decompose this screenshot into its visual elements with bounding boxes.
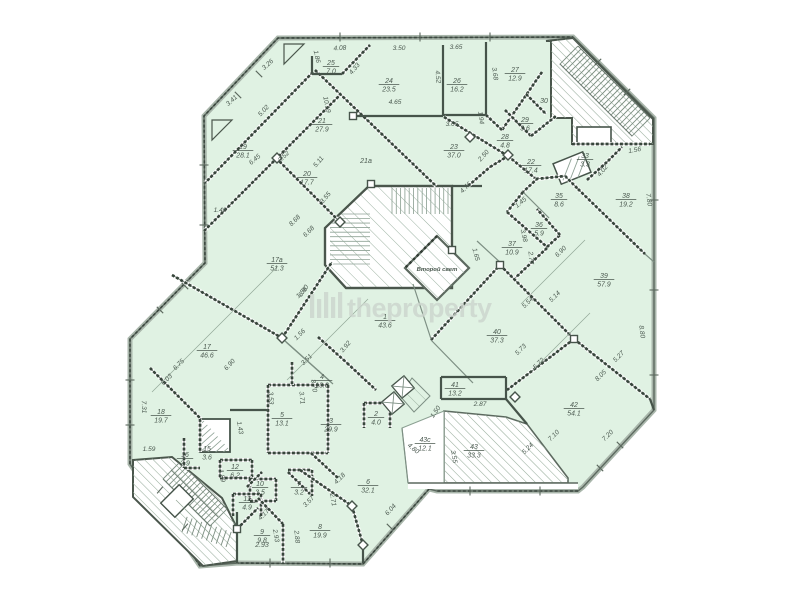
svg-text:29.9: 29.9 [323, 426, 338, 433]
svg-text:4.0: 4.0 [371, 419, 381, 426]
svg-text:19: 19 [239, 144, 247, 151]
svg-text:29: 29 [520, 117, 529, 124]
svg-text:17.4: 17.4 [524, 167, 538, 174]
svg-text:33.3: 33.3 [467, 452, 481, 459]
svg-text:5.9: 5.9 [534, 230, 544, 237]
svg-text:3.6: 3.6 [202, 454, 212, 461]
svg-text:16: 16 [181, 452, 189, 459]
svg-text:3.3: 3.3 [580, 161, 590, 168]
svg-text:2.77: 2.77 [526, 250, 534, 265]
svg-text:26: 26 [452, 78, 461, 85]
svg-text:19.2: 19.2 [619, 201, 633, 208]
svg-text:37: 37 [508, 241, 517, 248]
svg-text:5: 5 [280, 412, 284, 419]
svg-text:15: 15 [203, 446, 211, 453]
svg-text:9: 9 [260, 529, 264, 536]
svg-text:Второй свет: Второй свет [417, 266, 458, 273]
svg-text:1.59: 1.59 [143, 446, 156, 453]
svg-text:21: 21 [317, 118, 326, 125]
svg-text:3.53: 3.53 [267, 391, 274, 404]
svg-text:12.1: 12.1 [418, 445, 432, 452]
svg-text:24: 24 [384, 78, 393, 85]
svg-text:51.3: 51.3 [270, 265, 284, 272]
svg-text:22: 22 [526, 159, 535, 166]
svg-text:27: 27 [510, 67, 520, 74]
svg-text:12: 12 [231, 464, 239, 471]
svg-text:28: 28 [500, 134, 509, 141]
svg-text:2.93: 2.93 [254, 542, 269, 549]
svg-text:3.71: 3.71 [297, 391, 305, 405]
svg-text:6.2: 6.2 [230, 472, 240, 479]
svg-text:3.6: 3.6 [520, 125, 530, 132]
svg-text:17.7: 17.7 [300, 179, 315, 186]
svg-text:38: 38 [622, 193, 630, 200]
svg-text:25: 25 [326, 60, 335, 67]
svg-text:39: 39 [600, 273, 608, 280]
svg-text:17: 17 [203, 344, 212, 351]
svg-text:18: 18 [157, 409, 165, 416]
svg-text:4.65: 4.65 [389, 99, 402, 106]
svg-text:32.1: 32.1 [361, 487, 375, 494]
svg-text:36: 36 [535, 222, 543, 229]
svg-text:41: 41 [451, 382, 459, 389]
svg-text:3.5: 3.5 [255, 489, 265, 496]
svg-text:3.50: 3.50 [393, 45, 406, 52]
svg-text:7.31: 7.31 [140, 400, 147, 413]
svg-text:1.46: 1.46 [214, 207, 227, 214]
svg-text:3.2: 3.2 [294, 489, 304, 496]
svg-text:theproperty: theproperty [347, 293, 492, 323]
svg-text:13.2: 13.2 [448, 390, 462, 397]
svg-text:43.6: 43.6 [378, 322, 392, 329]
svg-text:16.2: 16.2 [450, 86, 464, 93]
svg-text:23.5: 23.5 [381, 86, 396, 93]
svg-text:4: 4 [320, 374, 324, 381]
svg-text:2: 2 [373, 411, 378, 418]
svg-text:10: 10 [256, 481, 264, 488]
svg-text:35: 35 [555, 193, 563, 200]
svg-text:10.9: 10.9 [505, 249, 519, 256]
svg-text:2.9: 2.9 [179, 460, 190, 467]
svg-text:4.08: 4.08 [333, 45, 347, 53]
svg-text:21а: 21а [359, 158, 372, 165]
svg-text:2.87: 2.87 [473, 401, 487, 408]
svg-text:37.3: 37.3 [490, 337, 504, 344]
svg-text:42: 42 [570, 402, 578, 409]
svg-text:37.0: 37.0 [447, 152, 461, 159]
svg-text:46.6: 46.6 [200, 352, 214, 359]
svg-text:8.6: 8.6 [554, 201, 564, 208]
svg-text:19.9: 19.9 [313, 532, 327, 539]
svg-text:4.9: 4.9 [242, 504, 252, 511]
svg-text:4.52: 4.52 [433, 70, 441, 84]
svg-text:11: 11 [243, 496, 250, 503]
svg-text:2.88: 2.88 [292, 529, 300, 544]
svg-text:20: 20 [302, 171, 311, 178]
svg-text:23: 23 [449, 144, 458, 151]
svg-text:3.65: 3.65 [450, 44, 463, 51]
svg-text:8: 8 [318, 524, 322, 531]
svg-text:13.1: 13.1 [275, 420, 289, 427]
svg-text:28.1: 28.1 [235, 152, 250, 159]
svg-text:43: 43 [470, 444, 478, 451]
svg-text:54.1: 54.1 [567, 410, 581, 417]
svg-text:3: 3 [329, 418, 333, 425]
svg-text:27.9: 27.9 [314, 126, 329, 133]
svg-text:30: 30 [540, 98, 548, 105]
svg-text:33: 33 [581, 153, 589, 160]
svg-text:17а: 17а [271, 257, 283, 264]
svg-text:3.05: 3.05 [446, 121, 459, 128]
svg-text:43с: 43с [419, 437, 431, 444]
svg-text:12.9: 12.9 [508, 75, 522, 82]
svg-text:19.7: 19.7 [154, 417, 169, 424]
svg-text:7.0: 7.0 [326, 68, 336, 75]
svg-text:4.8: 4.8 [500, 142, 510, 149]
svg-text:57.9: 57.9 [597, 281, 611, 288]
svg-text:6: 6 [366, 479, 370, 486]
svg-text:40: 40 [493, 329, 501, 336]
